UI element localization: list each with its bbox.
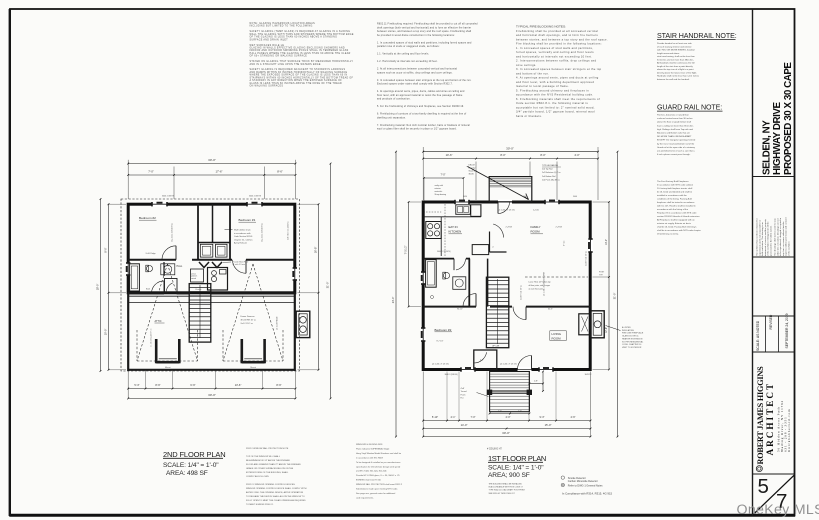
svg-text:batts or blankets.: batts or blankets. (516, 114, 542, 118)
svg-text:Mount: Mount (250, 366, 256, 369)
svg-text:3046 2 UNITS: 3046 2 UNITS (162, 196, 175, 198)
svg-text:R602.11 Fireblocking required:: R602.11 Fireblocking required: Fireblock… (377, 23, 478, 26)
svg-text:Wall Clothes Drain: Wall Clothes Drain (234, 229, 251, 232)
svg-text:Turned: Turned (461, 390, 467, 393)
svg-text:5'-10": 5'-10" (432, 416, 438, 419)
svg-text:POST: POST (599, 272, 605, 274)
svg-text:and floor level, with a buildi: and floor level, with a building departm… (516, 80, 594, 84)
svg-text:HEARTH EXTENSION: HEARTH EXTENSION (622, 337, 643, 340)
svg-text:18'-0": 18'-0" (96, 284, 100, 291)
svg-text:6. Fireblocking of cornices of: 6. Fireblocking of cornices of a two-fam… (377, 113, 466, 116)
svg-text:KnickbobberLtd.com: KnickbobberLtd.com (787, 408, 791, 452)
svg-text:AREA; 900 SF: AREA; 900 SF (488, 472, 530, 479)
svg-text:section R1003.9 Hearths & Hear: section R1003.9 Hearths & Hearth extensi… (657, 215, 700, 218)
svg-text:prosecuted to the fullest exte: prosecuted to the fullest extent. (769, 225, 772, 256)
svg-text:GUARD RAIL NOTE:: GUARD RAIL NOTE: (657, 104, 722, 112)
svg-text:The drawings shall not be used: The drawings shall not be used for any (774, 218, 777, 256)
svg-text:material to resist passage of: material to resist passage of flame. (516, 84, 569, 88)
svg-text:wool or glass fiber shall be s: wool or glass fiber shall be securely in… (377, 128, 457, 131)
svg-text:SCALE: 1/4" = 1'-0": SCALE: 1/4" = 1'-0" (488, 465, 544, 472)
svg-text:12'-6": 12'-6" (605, 327, 608, 333)
svg-text:vented: vented (191, 277, 196, 280)
svg-text:WINDOW FALL PROTECTION shall: WINDOW FALL PROTECTION shall meet R312.2 (356, 483, 403, 486)
svg-text:spaces such as occur at soffit: spaces such as occur at soffits, drop ce… (377, 71, 453, 74)
svg-text:3060: 3060 (523, 196, 527, 198)
svg-text:13'-6": 13'-6" (235, 383, 242, 387)
svg-text:Closets: Closets (195, 288, 201, 291)
svg-text:Chapter 16 - Clothes: Chapter 16 - Clothes (234, 238, 252, 241)
svg-text:express written permission and: express written permission and consent (785, 217, 788, 256)
svg-text:30'-0": 30'-0" (502, 431, 510, 435)
svg-text:In accordance with NYS code so: In accordance with NYS code solution (657, 184, 694, 187)
svg-text:5: 5 (757, 475, 768, 498)
svg-text:to be reproduced, changed or c: to be reproduced, changed or copied in (779, 217, 782, 256)
svg-text:TYPICAL FIRE BLOCKING NOTES:: TYPICAL FIRE BLOCKING NOTES: (516, 25, 566, 29)
svg-text:above the top riser of a fligh: above the top riser of a flight to a poi… (657, 68, 694, 71)
svg-text:(2) 1-3/4 x 9 1/4 LVL: (2) 1-3/4 x 9 1/4 LVL (498, 209, 515, 211)
svg-text:Fireplace B in accordance with: Fireplace B in accordance with NYS code (657, 212, 697, 215)
svg-text:dwelling unit separation.: dwelling unit separation. (377, 116, 406, 119)
svg-text:and IRC Table 301.2(2), 301.2(: and IRC Table 301.2(2), 301.2(3) (356, 471, 387, 473)
svg-text:Porch: Porch (461, 393, 466, 396)
svg-text:8'-6": 8'-6" (276, 383, 281, 387)
svg-text:and horizontal draft openings,: and horizontal draft openings, and to fo… (516, 33, 598, 37)
svg-text:INSULATING: INSULATING (622, 329, 634, 332)
svg-text:directly above the lowest rise: directly above the lowest riser of the f… (657, 71, 697, 74)
svg-text:AND RAMPS WITHIN 36 INCHES HOR: AND RAMPS WITHIN 36 INCHES HORIZONTALLY … (250, 71, 348, 74)
svg-text:Refer to DWG-1 General Notes: Refer to DWG-1 General Notes (568, 484, 603, 487)
svg-text:NOTE: GLAZING HAZARDOUS LOCATI: NOTE: GLAZING HAZARDOUS LOCATION AREAS (250, 22, 316, 25)
svg-text:R312.2 WINDOW FALL PROTECTION: R312.2 WINDOW FALL PROTECTION NOTE (246, 447, 289, 450)
svg-text:10'-6": 10'-6" (446, 153, 453, 157)
svg-text:Frame Dormers: Frame Dormers (241, 316, 255, 318)
svg-text:DELUX: DELUX (469, 165, 476, 167)
svg-text:TO RELEASE THE DEVICE SHALL AL: TO RELEASE THE DEVICE SHALL ALLOW THE WI… (246, 495, 305, 498)
svg-text:HALL PANELS WHERE THE GLAZING: HALL PANELS WHERE THE GLAZING IS LESS TH… (250, 52, 351, 55)
svg-text:exterior air supply. Exterior: exterior air supply. Exterior air ducts (657, 222, 691, 225)
svg-text:SEPTEMBER 24, 2019: SEPTEMBER 24, 2019 (785, 313, 789, 348)
svg-text:10'-0": 10'-0" (104, 329, 108, 336)
svg-text:floor level, with an approved: floor level, with an approved material t… (377, 94, 463, 97)
svg-text:Balusters and Bottom rails tha: Balusters and Bottom rails that are (657, 132, 691, 135)
svg-text:6'-6": 6'-6" (190, 383, 195, 387)
svg-text:Lanai: Heat 1/2" below top: Lanai: Heat 1/2" below top (529, 281, 551, 284)
svg-text:TYP.: TYP. (599, 275, 603, 277)
svg-text:A LISTED: A LISTED (622, 326, 631, 329)
svg-text:specification for 130 ultimate: specification for 130 ultimate design wi… (356, 465, 401, 468)
svg-text:Handrails shall not be less th: Handrails shall not be less than 1-1/2 i… (657, 75, 699, 78)
svg-text:cove ceilings.: cove ceilings. (516, 63, 537, 67)
svg-text:2'-0": 2'-0" (518, 410, 522, 412)
svg-text:Plans indicates SUPERSEAL Sing: Plans indicates SUPERSEAL Single (356, 447, 390, 450)
svg-text:36402.2 (LINCS): 36402.2 (LINCS) (437, 251, 451, 253)
svg-text:2x4 Top Rail: 2x4 Top Rail (542, 169, 553, 171)
svg-text:of the architect. Infringemen: of the architect. Infringement will be (767, 221, 770, 256)
svg-text:Guard rail at the open side of: Guard rail at the open side of a stairwa… (657, 146, 696, 149)
svg-text:STAIRWAYS WITHIN 60 INCHES HOR: STAIRWAYS WITHIN 60 INCHES HORIZONTALLY … (250, 76, 354, 79)
svg-text:in accordance with IRC R609: in accordance with IRC R609 (356, 456, 384, 459)
svg-text:installed in accordance with t: installed in accordance with the (657, 194, 688, 197)
svg-text:Provide HP LOW-E glass, U = .3: Provide HP LOW-E glass, U = .30, SHGC = … (356, 474, 400, 477)
svg-text:ARCHITECT: ARCHITECT (765, 382, 775, 456)
svg-text:4 inch sphere cannot pass thro: 4 inch sphere cannot pass through. (657, 153, 691, 156)
svg-text:The Fast Factory Built Firepla: The Fast Factory Built Fireplaces: (657, 180, 689, 183)
svg-text:TYPICAL RAILING: TYPICAL RAILING (542, 164, 558, 167)
svg-text:verify with: verify with (435, 184, 443, 187)
svg-text:FAMILY: FAMILY (531, 225, 541, 229)
svg-text:KITCHEN: KITCHEN (449, 230, 462, 234)
svg-text:Shop drawing: Shop drawing (435, 193, 447, 196)
svg-text:Code Section N1501: Code Section N1501 (234, 235, 253, 238)
svg-text:ROOM: ROOM (531, 230, 541, 234)
svg-text:2. At all interconnections bet: 2. At all interconnections between conce… (377, 68, 457, 71)
svg-text:7. Fireblocking material: Non: 7. Fireblocking material: Non inch nomin… (377, 124, 470, 127)
svg-text:2'-0": 2'-0" (498, 410, 502, 412)
svg-text:2x4 CJ 16" oc: 2x4 CJ 16" oc (241, 323, 253, 325)
svg-text:INCLUDING BUT LIMITED TO THE F: INCLUDING BUT LIMITED TO THE FOLLOWING: (250, 26, 314, 28)
svg-text:6. Fireblocking materials sha: 6. Fireblocking materials shall meet the… (516, 97, 600, 101)
svg-text:In Compliance with R314, R315,: In Compliance with R314, R315, 4G 915 (562, 492, 613, 496)
svg-text:FLOOR AND GREATER THAN 72" ABO: FLOOR AND GREATER THAN 72" ABOVE THE FIN… (246, 463, 301, 466)
svg-text:surfaces located more than 30: surfaces located more than 30 inches (657, 117, 693, 120)
svg-text:draft openings (both vertical: draft openings (both vertical and horizo… (377, 26, 471, 29)
svg-text:GRADE OR OTHER SURFACES BELOW: GRADE OR OTHER SURFACES BELOW ON THE (246, 467, 294, 470)
svg-text:30'-0": 30'-0" (208, 158, 216, 162)
svg-text:REVISED: REVISED (769, 314, 773, 329)
svg-text:Carbon Monoxide Detector: Carbon Monoxide Detector (568, 480, 598, 483)
svg-text:90'-10": 90'-10" (457, 309, 463, 311)
svg-text:TO MEET EGRESS R310.2.1: TO MEET EGRESS R310.2.1 (246, 504, 274, 506)
svg-text:62'-3": 62'-3" (548, 309, 553, 311)
svg-text:field verification. This draw: field verification. This drawing is an (761, 221, 764, 256)
svg-text:5. Fireblocking around chimne: 5. Fireblocking around chimney and firep… (516, 88, 589, 92)
svg-text:2'-8": 2'-8" (534, 380, 538, 382)
svg-text:in accordance with: in accordance with (234, 232, 251, 235)
svg-text:WINDOW OPENING CONTROL DEVICE: WINDOW OPENING CONTROL DEVICE SHALL COMP… (246, 487, 307, 490)
svg-text:4'-0": 4'-0" (506, 416, 511, 419)
svg-text:Laundry: Laundry (469, 167, 476, 170)
svg-text:be UL listed and labeled and s: be UL listed and labeled and shall be (657, 191, 693, 194)
svg-text:high. Railings shall have Top: high. Railings shall have Top rails and (657, 129, 694, 131)
svg-text:and horizontally at intervals: and horizontally at intervals not exceed… (516, 54, 592, 58)
svg-text:any form or manner without fir: any form or manner without first the (782, 221, 785, 256)
svg-text:3646 2 (UNGS): 3646 2 (UNGS) (444, 374, 457, 376)
svg-text:conditions of the listing. Fac: conditions of the listing. Factory-Built (657, 198, 692, 201)
svg-text:2'-2918: 2'-2918 (556, 227, 562, 229)
svg-text:be provided in wood-frame cons: be provided in wood-frame construction i… (377, 34, 455, 37)
svg-text:between stories, and between a: between stories, and between a top story… (516, 37, 608, 41)
svg-text:n L 10 ceiling @ 16" oc: n L 10 ceiling @ 16" oc (151, 329, 153, 347)
svg-text:2x2 Balusters @ 4" oc: 2x2 Balusters @ 4" oc (542, 171, 561, 174)
svg-text:shall be UL listed. Factory B: shall be UL listed. Factory Built Chimne… (657, 226, 696, 229)
svg-text:WALL THE GLAZING WITH TUBS AND: WALL THE GLAZING WITH TUBS AND SHOWERS W… (250, 33, 354, 36)
svg-text:TYPE R302.11 LOAD DRAFT FOOTPR: TYPE R302.11 LOAD DRAFT FOOTPRINT (489, 489, 526, 492)
svg-text:AREA: 498 SF: AREA: 498 SF (166, 470, 208, 477)
svg-text:EXTERIOR SIDE OF THE BUILDING: EXTERIOR SIDE OF THE BUILDING, SHALL (246, 471, 289, 474)
svg-text:15'-0": 15'-0" (545, 423, 552, 427)
svg-text:GLAZING IN WALLS EFFECTIVE G: GLAZING IN WALLS EFFECTIVE GLAZING ENCLO… (250, 46, 345, 49)
svg-text:4. At openings around vents,: 4. At openings around vents, pipes and d… (516, 76, 599, 80)
svg-text:(2) 1-3/4 x 9-1/4 LVL FLUSH: (2) 1-3/4 x 9-1/4 LVL FLUSH (544, 272, 546, 296)
svg-text:ON WALKING SURFACES: ON WALKING SURFACES (250, 85, 284, 88)
svg-text:HIGHWAY DRIVE: HIGHWAY DRIVE (772, 102, 783, 175)
svg-text:6" rise: 6" rise (563, 241, 566, 246)
svg-text:Fire blocking shall be provide: Fire blocking shall be provided in the f… (516, 42, 602, 46)
svg-text:EGRESS shall meet R 310: EGRESS shall meet R 310 (356, 479, 382, 482)
svg-text:fireplaces shall be tested in: fireplaces shall be tested in accordance (657, 201, 695, 204)
svg-text:Bedroom #2: Bedroom #2 (435, 328, 452, 332)
svg-text:Enclosed spaces under stairs s: Enclosed spaces under stairs shall compl… (377, 83, 453, 86)
svg-text:Provide WaterProof: Provide WaterProof (233, 261, 249, 264)
svg-text:1.2. Horizontally at intervals: 1.2. Horizontally at intervals not excee… (377, 60, 438, 63)
svg-text:(2) 1-3/4 x 9 1/4 LVL: (2) 1-3/4 x 9 1/4 LVL (500, 364, 517, 366)
svg-text:of the architect.: of the architect. (787, 241, 790, 256)
svg-text:materials: materials (435, 190, 443, 193)
svg-text:IN ACCORDANCE WITH NYS CODE 17: IN ACCORDANCE WITH NYS CODE 17 (489, 486, 523, 489)
svg-text:5'-3": 5'-3" (134, 383, 139, 387)
svg-text:4. At openings around vents, p: 4. At openings around vents, pipes, duct… (377, 90, 465, 93)
svg-text:STAIR HANDRAIL NOTE:: STAIR HANDRAIL NOTE: (657, 32, 737, 40)
svg-text:All handrails shall be continu: All handrails shall be continuous the fu… (657, 62, 695, 65)
svg-text:31'-0": 31'-0" (613, 293, 617, 300)
svg-text:14'-0": 14'-0" (461, 423, 468, 427)
svg-text:3046 2 UNITS: 3046 2 UNITS (249, 196, 262, 198)
svg-text:7'-0": 7'-0" (441, 174, 446, 177)
svg-text:9'-3": 9'-3" (540, 416, 545, 419)
svg-text:UP 14R: UP 14R (492, 345, 500, 347)
svg-text:between stories, and between a: between stories, and between a top story… (377, 30, 472, 33)
svg-text:3046: 3046 (573, 196, 577, 198)
svg-text:Bedroom #1: Bedroom #1 (239, 218, 256, 222)
svg-text:EAT IN: EAT IN (449, 225, 458, 229)
svg-text:2ND FLOOR PLAN: 2ND FLOOR PLAN (163, 450, 226, 459)
svg-text:All Fireplaces shall be equipp: All Fireplaces shall be equipped with an (657, 219, 695, 222)
svg-text:2x10 FJ @ 16" oc: 2x10 FJ @ 16" oc (521, 285, 523, 300)
svg-text:exterior: exterior (435, 187, 442, 190)
svg-text:Mount: Mount (165, 366, 171, 369)
svg-text:WET SURFACES RULE LE: WET SURFACES RULE LE (250, 44, 285, 47)
svg-text:BE A MINIMUM OF 24" ABOVE THE: BE A MINIMUM OF 24" ABOVE THE FINISHED (246, 459, 291, 462)
svg-text:34 inches and not more than 38: 34 inches and not more than 38inches. (657, 58, 694, 61)
svg-text:4'x8': 4'x8' (461, 388, 465, 390)
svg-text:GLASS DOORS &: GLASS DOORS & (622, 335, 639, 338)
svg-text:code requirements.: code requirements. (356, 496, 374, 499)
svg-text:Fireblocking shall be provided: Fireblocking shall be provided at all co… (516, 29, 598, 33)
svg-text:have a railing not more than 3: have a railing not more than 36 inches (657, 124, 693, 127)
svg-text:Bedroom #2: Bedroom #2 (139, 216, 156, 220)
svg-text:by the riser, tread and bottom: by the riser, tread and bottom rail of t… (657, 142, 695, 145)
svg-text:accordance with the NYS Reside: accordance with the NYS Residential buil… (516, 93, 593, 97)
svg-text:Clg Joists 2x8 @16"oc: Clg Joists 2x8 @16"oc (171, 223, 174, 242)
svg-text:10. factory-built fireplace in: 10. factory-built fireplace inserts shal… (657, 187, 693, 190)
svg-text:LIVING: LIVING (552, 332, 562, 336)
svg-text:2-2x10: 2-2x10 (533, 209, 539, 211)
svg-text:ASTM F 2090. THE OPENING DEVIC: ASTM F 2090. THE OPENING DEVICE, AFTER O… (246, 491, 304, 494)
svg-text:instrument of service and the: instrument of service and the property (764, 218, 767, 256)
svg-text:SCALE: AS NOTED: SCALE: AS NOTED (756, 320, 760, 351)
svg-text:WHERE THE EXPOSED SURFACE OF T: WHERE THE EXPOSED SURFACE OF THE GLAZING… (250, 74, 348, 77)
svg-text:FIRE LINE FIREPLACE: FIRE LINE FIREPLACE (622, 332, 644, 335)
svg-text:1. In concealed spaces of stud: 1. In concealed spaces of stud walls and… (377, 41, 472, 44)
svg-text:2x4 Bottom Rail: 2x4 Bottom Rail (542, 175, 556, 178)
svg-text:SO PER RESIDENTIAL: SO PER RESIDENTIAL (622, 340, 644, 343)
svg-text:To be designed & installed as: To be designed & installed as per manufa… (356, 461, 400, 464)
svg-text:other site or location. Drawi: other site or location. Drawings are not (776, 218, 779, 256)
svg-text:(2) 1-3/4 x 9 1/4 LVL: (2) 1-3/4 x 9 1/4 LVL (432, 364, 449, 366)
svg-text:accordance with the listing of: accordance with the listing of the (657, 208, 689, 211)
svg-text:FULLY OPEN TO MEET THE CLEAR O: FULLY OPEN TO MEET THE CLEAR OPENING AS … (246, 499, 306, 502)
svg-text:of floor joists, side hanger: of floor joists, side hanger (529, 284, 551, 287)
svg-text:3ft 2x8 RR 16" oc: 3ft 2x8 RR 16" oc (241, 319, 257, 322)
svg-text:R312.2.2 WINDOW OPENING CONTRO: R312.2.2 WINDOW OPENING CONTROL DEVICES: (246, 484, 296, 486)
svg-text:acceptable but not limited to:: acceptable but not limited to: 2" nomina… (516, 105, 595, 109)
svg-text:TOP OF THE WINDOW SILL SHALL: TOP OF THE WINDOW SILL SHALL (246, 455, 281, 458)
svg-text:GLASS IS LESS THAN 60 INCHES A: GLASS IS LESS THAN 60 INCHES ABOVE THE N… (250, 82, 342, 85)
svg-text:2x10 Ridge: 2x10 Ridge (146, 253, 157, 255)
svg-text:8'-6": 8'-6" (277, 170, 283, 174)
svg-text:Avery Exhaust: Avery Exhaust (234, 242, 247, 245)
svg-text:7'-0": 7'-0" (148, 170, 154, 174)
svg-text:A STAIRWAY IN ANY DIRECTION WH: A STAIRWAY IN ANY DIRECTION WHEN THE EXP… (250, 79, 343, 82)
svg-text:PROPOSED 30 X 30 CAPE: PROPOSED 30 X 30 CAPE (783, 62, 794, 175)
svg-text:STAYED ON GLAZING THAT SURFACE: STAYED ON GLAZING THAT SURFACE TRICK BY … (250, 60, 354, 63)
svg-text:and products of combustion.: and products of combustion. (377, 98, 411, 101)
svg-text:WINDOWS & SLIDING DRS: WINDOWS & SLIDING DRS (356, 444, 383, 446)
svg-text:THE BUILDING SHALL BE INSTALLE: THE BUILDING SHALL BE INSTALLED (489, 483, 523, 486)
svg-text:1ST FLOOR PLAN: 1ST FLOOR PLAN (488, 454, 546, 463)
svg-text:length of the stair from a poi: length of the stair from a point directl… (657, 65, 694, 68)
svg-text:5. For the fireblocking of chi: 5. For the fireblocking of chimneys and … (377, 105, 464, 108)
svg-text:8'-6": 8'-6" (155, 383, 160, 387)
svg-text:at each floor joist: at each floor joist (529, 287, 544, 290)
svg-text:30'-0": 30'-0" (506, 146, 514, 150)
svg-text:2x8 rafter ties @32"oc: 2x8 rafter ties @32"oc (287, 221, 290, 240)
svg-text:above the floor or grade below: above the floor or grade below shall (657, 121, 691, 124)
svg-text:ATTIC: ATTIC (155, 320, 162, 323)
svg-text:with UL 127, Hearths shall be: with UL 127, Hearths shall be installed … (657, 205, 696, 208)
svg-text:are permitted to be of such a: are permitted to be of such a size that … (657, 150, 695, 153)
svg-text:Clg Joists 2x8 @16"oc: Clg Joists 2x8 @16"oc (261, 223, 264, 242)
svg-text:SELDEN, NY: SELDEN, NY (762, 120, 773, 175)
svg-text:See page one, general notes fo: See page one, general notes for addition… (356, 492, 396, 495)
svg-text:3. In concealed spaces between: 3. In concealed spaces between stair str… (377, 79, 472, 82)
svg-text:1. In concealed spaces of stu: 1. In concealed spaces of stud walls and… (516, 46, 593, 50)
svg-text:4'-6": 4'-6" (571, 416, 576, 419)
svg-text:NO MORE THAN 4 INCHES APART: NO MORE THAN 4 INCHES APART (657, 135, 692, 138)
svg-text:8'-7 1/2": 8'-7 1/2" (437, 341, 444, 343)
svg-text:VENT TO EXTERIOR: VENT TO EXTERIOR (622, 347, 642, 349)
svg-text:10'-2": 10'-2" (605, 239, 608, 245)
svg-text:4'-1": 4'-1" (451, 416, 456, 419)
svg-text:Hung Vinyl Window Model Number: Hung Vinyl Window Model Numbers and shal… (356, 452, 402, 455)
svg-text:CODE. CHAPTER 10: CODE. CHAPTER 10 (622, 343, 642, 346)
svg-text:stair tread nosing, shall not: stair tread nosing, shall not be less th… (657, 55, 696, 58)
svg-text:4'-0": 4'-0" (574, 153, 579, 157)
svg-text:supervision and is not respons: supervision and is not responsible for (758, 220, 761, 256)
svg-text:Fl. with 4' Drain: Fl. with 4' Drain (233, 263, 245, 266)
svg-text:shall be in accordance with NY: shall be in accordance with NYS code cha… (657, 229, 701, 232)
svg-text:2x10 FJ @ 16" oc: 2x10 FJ @ 16" oc (586, 251, 588, 266)
svg-text:Porches, balconies or raised f: Porches, balconies or raised floor (657, 115, 689, 117)
svg-text:and bottom of the run.: and bottom of the run. (516, 71, 549, 75)
svg-text:17'-6": 17'-6" (215, 170, 222, 174)
svg-text:furred spaces, vertically and: furred spaces, vertically and ceiling an… (516, 50, 594, 54)
svg-text:The architect has not been ret: The architect has not been retained for (756, 218, 759, 256)
svg-text:SAFETY GLAZING (TEMP GLASS) IS: SAFETY GLAZING (TEMP GLASS) IS REQUIRED … (250, 30, 351, 33)
svg-text:SURFACE AND DRAIN INLET: SURFACE AND DRAIN INLET (250, 38, 289, 41)
svg-text:8'-0": 8'-0" (500, 153, 505, 157)
svg-text:HALL: HALL (177, 265, 183, 268)
svg-text:INDOOR AND OUTDOOR SWIMMING PO: INDOOR AND OUTDOOR SWIMMING POOLS SHALL … (250, 49, 349, 52)
svg-text:OF 60+ STANDING OR WALKING SUR: OF 60+ STANDING OR WALKING SURFACE (250, 55, 308, 58)
svg-text:Provide handrail on at least o: Provide handrail on at least one side (657, 42, 692, 45)
svg-text:SAFETY GLAZING IS REQUIRED ADJ: SAFETY GLAZING IS REQUIRED ADJACENT TO S… (250, 68, 346, 71)
svg-text:AND IN A STRAIGHT LINE UPON T: AND IN A STRAIGHT LINE UPON THE WATERS E… (250, 63, 321, 66)
svg-text:# CEILING HT: # CEILING HT (487, 449, 502, 451)
svg-text:OF THE GLAZING IS LESS THAN 60: OF THE GLAZING IS LESS THAN 60 INCHES AB… (250, 36, 338, 39)
svg-text:16'-8": 16'-8" (314, 247, 318, 254)
svg-text:(2) 2x10 RIDGE: (2) 2x10 RIDGE (277, 316, 279, 330)
svg-text:Code section R602.8.1. the fo: Code section R602.8.1. the following mat… (516, 101, 588, 105)
svg-text:SEE DWG 01 THRU DWG 017: SEE DWG 01 THRU DWG 017 (489, 493, 515, 495)
svg-text:31'-0": 31'-0" (326, 282, 330, 289)
svg-text:5'-0": 5'-0" (480, 360, 484, 362)
svg-text:Bath: Bath (146, 288, 150, 291)
svg-text:18 (chimneys & vents).: 18 (chimneys & vents). (657, 233, 679, 236)
svg-text:2. Interconnections between s: 2. Interconnections between soffits, dro… (516, 59, 597, 63)
svg-text:24'-0": 24'-0" (391, 297, 395, 304)
svg-text:with TWO OR MORE RISERS, handr: with TWO OR MORE RISERS, handrail (657, 49, 695, 52)
svg-text:8'-0": 8'-0" (540, 153, 545, 157)
svg-text:Fce: Fce (461, 398, 464, 400)
svg-text:ROBERT JAMES HIGGINS: ROBERT JAMES HIGGINS (756, 366, 765, 465)
svg-text:3. In concealed spaces betwee: 3. In concealed spaces between stair str… (516, 67, 602, 71)
svg-text:height measured above: height measured above (657, 52, 680, 55)
svg-text:ROOM: ROOM (552, 336, 562, 340)
svg-text:1.1. Vertically at the ceiling: 1.1. Vertically at the ceiling and floor… (377, 53, 429, 56)
svg-text:36x36: 36x36 (469, 174, 474, 176)
svg-text:OneKey MLS: OneKey MLS (737, 502, 819, 518)
svg-text:Substitutions made upon meetin: Substitutions made upon meeting NYS Code… (356, 488, 398, 491)
svg-text:EXCEPT the triangular openings: EXCEPT the triangular openings formed (657, 139, 696, 142)
svg-text:8'-0": 8'-0" (104, 247, 108, 252)
svg-text:SCALE: 1/4" = 1'-0": SCALE: 1/4" = 1'-0" (163, 462, 219, 469)
svg-text:of each stairway interior and: of each stairway interior and exterior (657, 45, 692, 48)
svg-text:7'-0": 7'-0" (471, 416, 476, 419)
svg-text:7'-0 1/2": 7'-0 1/2" (405, 245, 408, 254)
svg-text:COMPLY AS FOLLOWS:: COMPLY AS FOLLOWS: (246, 475, 270, 478)
svg-text:between the wall and the handr: between the wall and the handrail. (657, 78, 690, 81)
svg-text:parallel rows of studs or stag: parallel rows of studs or staggered stud… (377, 45, 440, 48)
svg-text:30'-0": 30'-0" (208, 393, 216, 397)
svg-text:3/4" particle board, 1/2" gyps: 3/4" particle board, 1/2" gypsum board, … (516, 110, 595, 114)
svg-text:2'-2918: 2'-2918 (506, 227, 512, 229)
